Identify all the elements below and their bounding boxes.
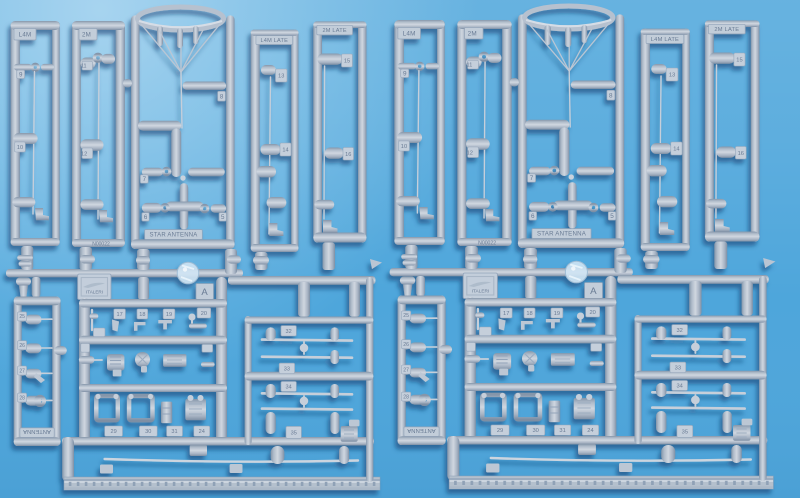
svg-text:14: 14: [282, 148, 288, 154]
svg-text:ANTENNA: ANTENNA: [23, 428, 51, 434]
svg-text:6: 6: [144, 214, 148, 221]
svg-text:8: 8: [220, 93, 224, 100]
svg-text:12: 12: [81, 151, 87, 157]
svg-text:ITALERI: ITALERI: [86, 290, 103, 295]
svg-text:18: 18: [139, 312, 145, 318]
svg-text:L4M: L4M: [19, 31, 32, 38]
svg-text:7: 7: [143, 176, 147, 183]
svg-text:2M: 2M: [82, 31, 91, 38]
svg-text:24: 24: [199, 429, 205, 435]
svg-text:27: 27: [19, 368, 25, 374]
svg-text:5: 5: [221, 214, 225, 221]
svg-text:25: 25: [19, 314, 25, 320]
svg-text:L4M LATE: L4M LATE: [260, 38, 288, 44]
svg-text:11: 11: [81, 64, 87, 70]
svg-text:26: 26: [19, 343, 25, 349]
svg-text:10: 10: [17, 145, 23, 151]
svg-text:35: 35: [291, 430, 297, 436]
svg-text:16: 16: [345, 152, 351, 158]
svg-text:N00022: N00022: [92, 242, 110, 248]
svg-text:9: 9: [19, 72, 23, 79]
svg-text:28: 28: [19, 395, 25, 401]
svg-text:A: A: [201, 287, 208, 298]
svg-text:31: 31: [171, 429, 177, 435]
svg-text:29: 29: [110, 429, 116, 435]
svg-text:13: 13: [278, 74, 284, 80]
svg-text:20: 20: [201, 311, 207, 317]
svg-text:30: 30: [145, 429, 151, 435]
svg-text:15: 15: [344, 59, 350, 65]
svg-text:2M LATE: 2M LATE: [322, 28, 346, 34]
svg-text:33: 33: [284, 366, 290, 372]
svg-text:STAR ANTENNA: STAR ANTENNA: [150, 233, 198, 239]
svg-text:19: 19: [166, 312, 172, 318]
svg-text:17: 17: [116, 312, 122, 318]
svg-text:34: 34: [286, 385, 292, 391]
svg-text:32: 32: [286, 329, 292, 335]
